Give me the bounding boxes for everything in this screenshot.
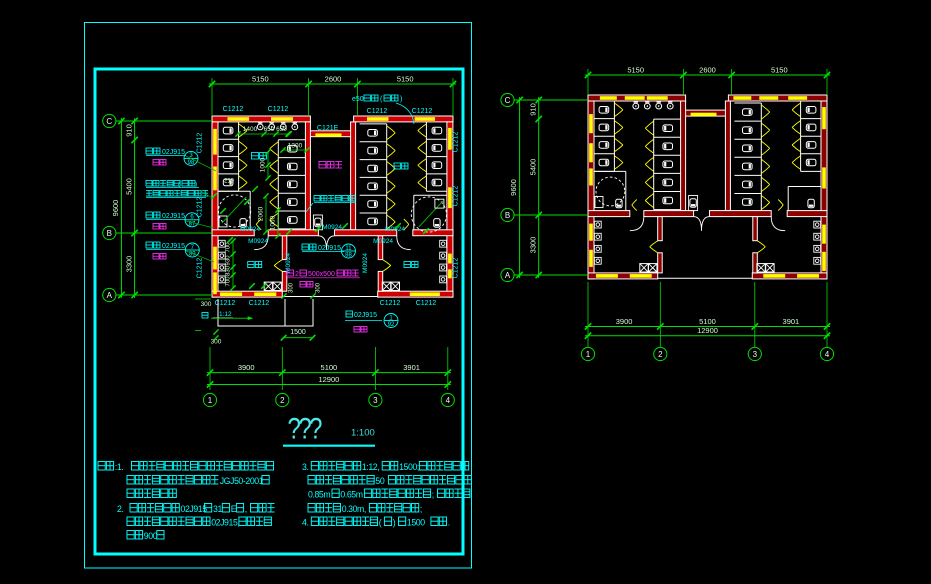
svg-text:2600: 2600 [325,75,342,84]
svg-text:830: 830 [226,265,232,276]
svg-text:E: E [231,504,237,514]
svg-text:C1212: C1212 [412,108,433,115]
svg-text:5150: 5150 [771,66,788,75]
svg-text:B: B [107,229,112,238]
svg-text:5150: 5150 [397,75,414,84]
svg-text:): ) [195,181,197,188]
svg-text:.: . [448,518,450,528]
svg-text:M0924: M0924 [248,238,268,245]
svg-text:12900: 12900 [697,326,718,335]
svg-text:700: 700 [226,242,232,253]
svg-text:2: 2 [658,350,663,359]
svg-text:650: 650 [264,126,275,133]
svg-text:11: 11 [345,246,352,252]
svg-text:JGJ50-2001: JGJ50-2001 [220,476,264,486]
svg-text:M0924: M0924 [373,238,393,245]
svg-text:): ) [400,96,402,103]
svg-text:9600: 9600 [509,179,518,196]
svg-text:A: A [107,291,113,300]
svg-text:3900: 3900 [616,317,633,326]
svg-text:1500;: 1500; [399,462,419,472]
svg-text:C1212: C1212 [223,106,244,113]
svg-text:1400: 1400 [243,126,258,133]
svg-text:B: B [505,211,510,220]
svg-text:5100: 5100 [321,363,338,372]
svg-text:2.: 2. [117,504,123,514]
svg-text:C1212: C1212 [453,258,460,279]
svg-text:C1212: C1212 [249,300,270,307]
svg-text:0.85m: 0.85m [308,490,330,500]
svg-text:50: 50 [375,476,384,486]
svg-text:C1212: C1212 [197,133,204,154]
svg-text:3901: 3901 [403,363,420,372]
svg-text:02J915: 02J915 [354,312,377,319]
svg-text:C1212: C1212 [453,186,460,207]
svg-text:M0924: M0924 [322,224,342,231]
svg-text:900: 900 [144,531,158,541]
svg-text:M0924: M0924 [385,226,405,233]
svg-text:700: 700 [226,276,232,287]
svg-text:300: 300 [316,282,322,293]
svg-text:C1212: C1212 [380,300,401,307]
svg-text:3300: 3300 [529,237,538,254]
svg-text:1:100: 1:100 [351,428,375,439]
svg-text:9600: 9600 [111,200,120,217]
svg-text:3900: 3900 [238,363,255,372]
svg-text:C121E: C121E [317,125,339,132]
svg-text:300: 300 [201,301,212,308]
svg-text:02J915,: 02J915, [211,518,239,528]
svg-text:98: 98 [188,160,195,166]
svg-text:12900: 12900 [318,375,339,384]
svg-text:910: 910 [529,103,538,116]
svg-text:C1212: C1212 [367,108,388,115]
svg-text:A: A [505,271,511,280]
svg-text:C1212: C1212 [268,106,289,113]
svg-text:0.30m,: 0.30m, [342,504,366,514]
svg-text:1: 1 [586,350,591,359]
svg-text:300: 300 [289,282,295,293]
svg-text:5100: 5100 [699,317,716,326]
svg-text:5400: 5400 [125,178,134,195]
svg-text:,: , [245,504,247,514]
svg-text:02J915: 02J915 [181,504,208,514]
svg-text:1500: 1500 [407,518,425,528]
svg-text:2060: 2060 [258,206,265,221]
svg-text:e50: e50 [352,96,364,103]
svg-text:210: 210 [224,179,235,185]
svg-text:C1212: C1212 [197,197,204,218]
svg-text:4.: 4. [302,518,308,528]
svg-text:5400: 5400 [529,159,538,176]
svg-text:C: C [106,117,112,126]
svg-text:C1212: C1212 [453,132,460,153]
svg-text:C1212: C1212 [416,300,437,307]
svg-text:5150: 5150 [627,66,644,75]
svg-text:1:12: 1:12 [219,311,232,318]
svg-text:1: 1 [208,396,213,405]
svg-text:31: 31 [213,504,222,514]
svg-text:02J915: 02J915 [162,213,185,220]
svg-text:1500: 1500 [290,329,306,336]
svg-text:4: 4 [825,350,830,359]
svg-text:3: 3 [753,350,758,359]
svg-text:300: 300 [211,339,222,346]
svg-text:C1212: C1212 [197,258,204,279]
svg-text:?: ? [309,411,322,445]
svg-text:1000: 1000 [260,157,267,172]
svg-text:930: 930 [226,255,232,266]
svg-text:M0924: M0924 [362,253,369,273]
svg-text:500x500: 500x500 [308,271,335,278]
svg-text:3901: 3901 [783,317,800,326]
svg-text:4: 4 [446,396,451,405]
svg-text:3.: 3. [302,462,308,472]
svg-text:910: 910 [125,124,134,137]
svg-text:02J915: 02J915 [318,245,341,252]
svg-text:88: 88 [345,253,352,259]
svg-text:5150: 5150 [252,75,269,84]
svg-text:C: C [505,96,511,105]
svg-text:0.65m: 0.65m [340,490,362,500]
svg-text:1000: 1000 [270,215,277,230]
svg-text:2600: 2600 [699,66,716,75]
svg-text:M0924: M0924 [240,226,260,233]
svg-text:2: 2 [295,271,299,278]
svg-text:3300: 3300 [125,256,134,273]
svg-text:2: 2 [280,396,285,405]
svg-text:92: 92 [388,322,395,328]
svg-text:;: ; [432,490,434,500]
svg-text:;: ; [420,504,422,514]
svg-text:1:12,: 1:12, [362,462,379,472]
svg-text:02J915: 02J915 [162,149,185,156]
svg-text:1300: 1300 [288,143,303,150]
svg-text:02J915: 02J915 [162,243,185,250]
svg-text:650: 650 [276,126,287,133]
svg-text::1.: :1. [115,462,124,472]
svg-text:3: 3 [373,396,378,405]
